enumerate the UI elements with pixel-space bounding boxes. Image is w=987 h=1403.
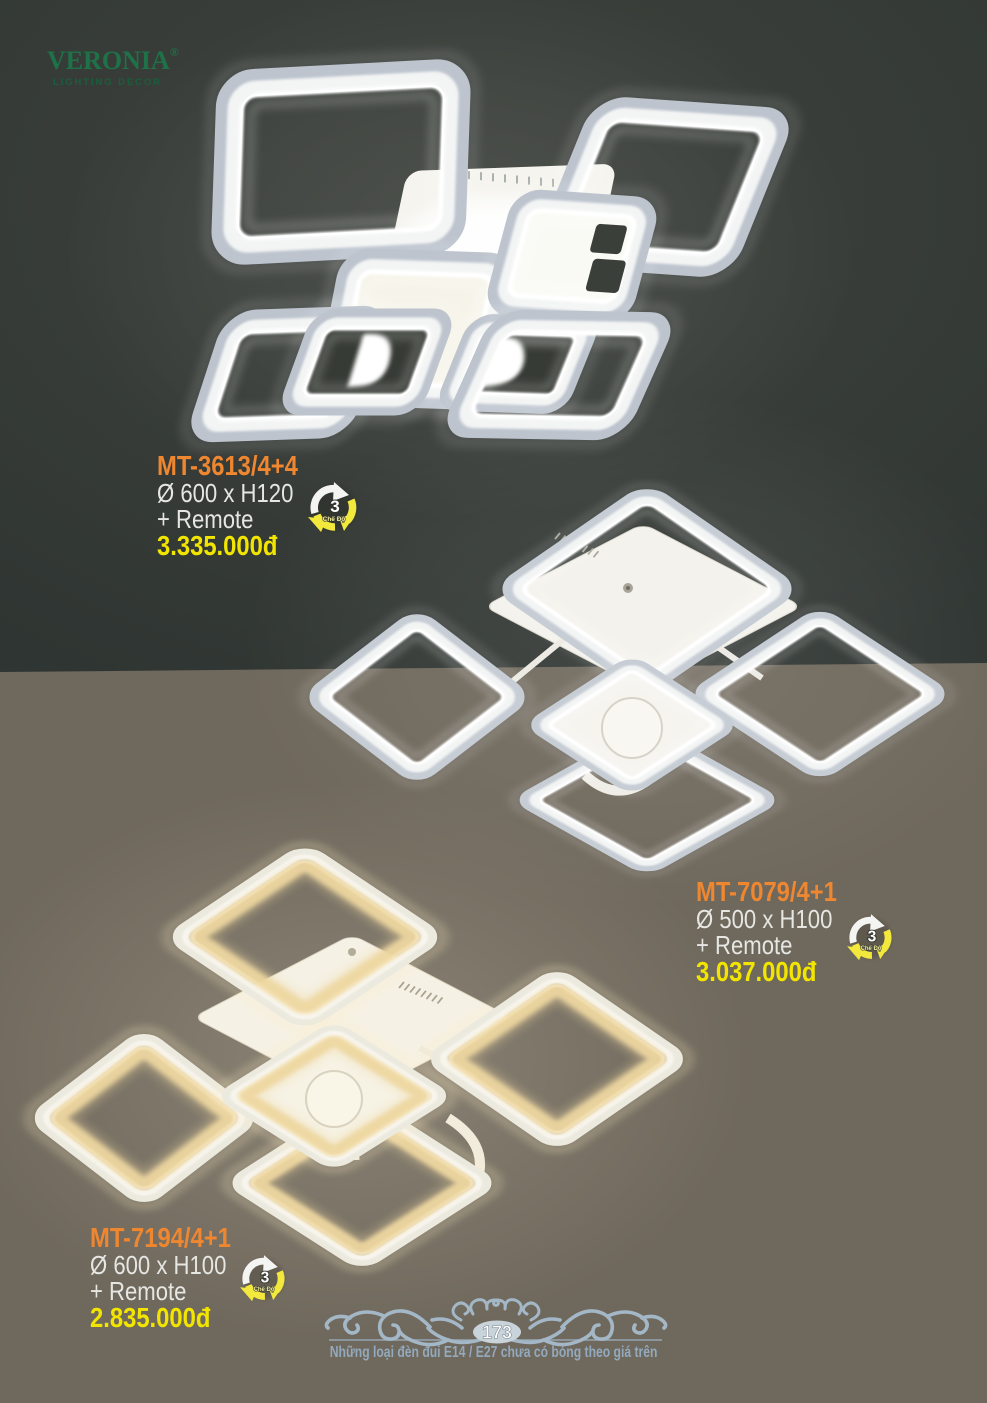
svg-text:3: 3: [868, 929, 877, 946]
svg-text:173: 173: [482, 1323, 512, 1343]
svg-text:3: 3: [330, 497, 339, 516]
svg-text:Chế Độ: Chế Độ: [861, 945, 882, 952]
svg-text:Chế Độ: Chế Độ: [323, 515, 346, 523]
svg-text:Chế Độ: Chế Độ: [254, 1286, 275, 1293]
svg-text:3: 3: [261, 1270, 270, 1287]
